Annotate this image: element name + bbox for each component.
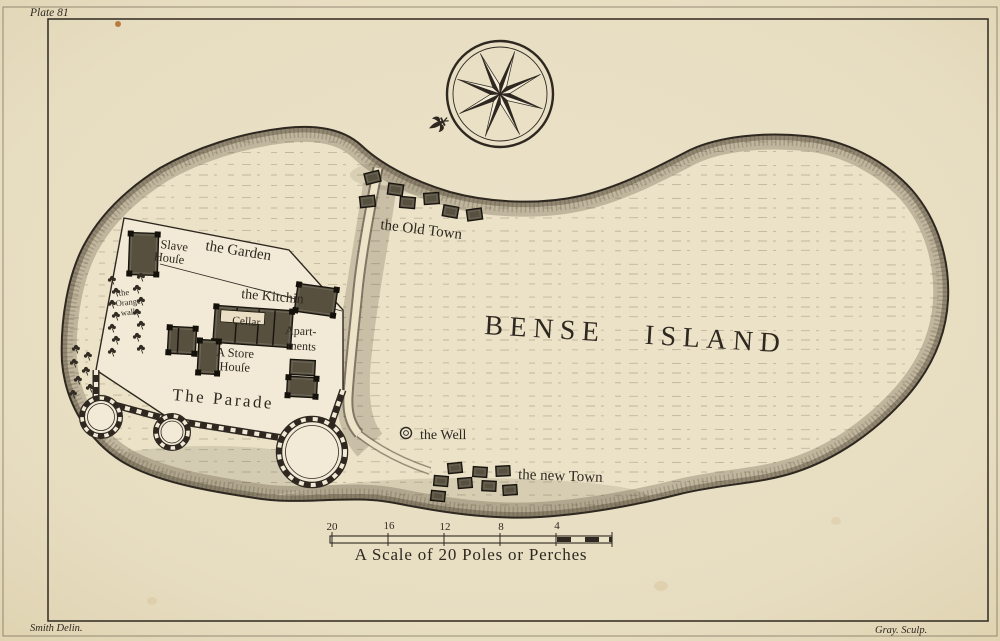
new-town-hut xyxy=(434,475,449,486)
bastion-southeast xyxy=(279,419,345,485)
new-town-hut xyxy=(458,477,473,488)
scale-tick-12: 12 xyxy=(440,521,451,533)
old-town-hut xyxy=(387,183,403,196)
engraved-map-plate: 20 16 12 8 4 A Scale of 20 Poles or Perc… xyxy=(0,0,1000,641)
plate-number: Plate 81 xyxy=(29,7,69,19)
new-town-hut xyxy=(448,462,463,473)
scale-caption: A Scale of 20 Poles or Perches xyxy=(355,545,588,564)
new-town-hut xyxy=(496,466,511,477)
new-town-hut xyxy=(431,490,446,501)
old-town-hut xyxy=(424,192,440,204)
apartments-building xyxy=(284,374,319,400)
scale-segment xyxy=(557,537,571,542)
well-icon xyxy=(401,428,412,439)
new-town-hut xyxy=(503,485,518,496)
credit-engraver: Gray. Sculp. xyxy=(875,625,927,636)
scale-segment xyxy=(585,537,599,542)
scale-segment xyxy=(609,537,612,542)
bastion-west xyxy=(82,398,120,436)
credit-delineator: Smith Delin. xyxy=(30,623,83,634)
label-cellar: Cellar xyxy=(232,315,261,329)
new-town-hut xyxy=(482,481,497,492)
label-apartments: Apart- ments xyxy=(284,323,320,354)
new-town-hut xyxy=(473,467,488,478)
old-town-hut xyxy=(359,195,375,208)
scale-tick-20: 20 xyxy=(327,521,339,533)
west-store-building xyxy=(165,324,199,357)
label-well: the Well xyxy=(420,428,467,443)
map-canvas: 20 16 12 8 4 A Scale of 20 Poles or Perc… xyxy=(0,0,1000,641)
scale-tick-4: 4 xyxy=(554,520,560,532)
label-new-town: the new Town xyxy=(518,467,603,486)
apartments-building xyxy=(290,359,316,375)
bastion-middle xyxy=(156,416,188,448)
scale-tick-16: 16 xyxy=(384,520,396,532)
scale-tick-8: 8 xyxy=(498,521,504,533)
old-town-hut xyxy=(466,208,482,221)
old-town-hut xyxy=(442,205,459,218)
old-town-hut xyxy=(400,196,416,208)
